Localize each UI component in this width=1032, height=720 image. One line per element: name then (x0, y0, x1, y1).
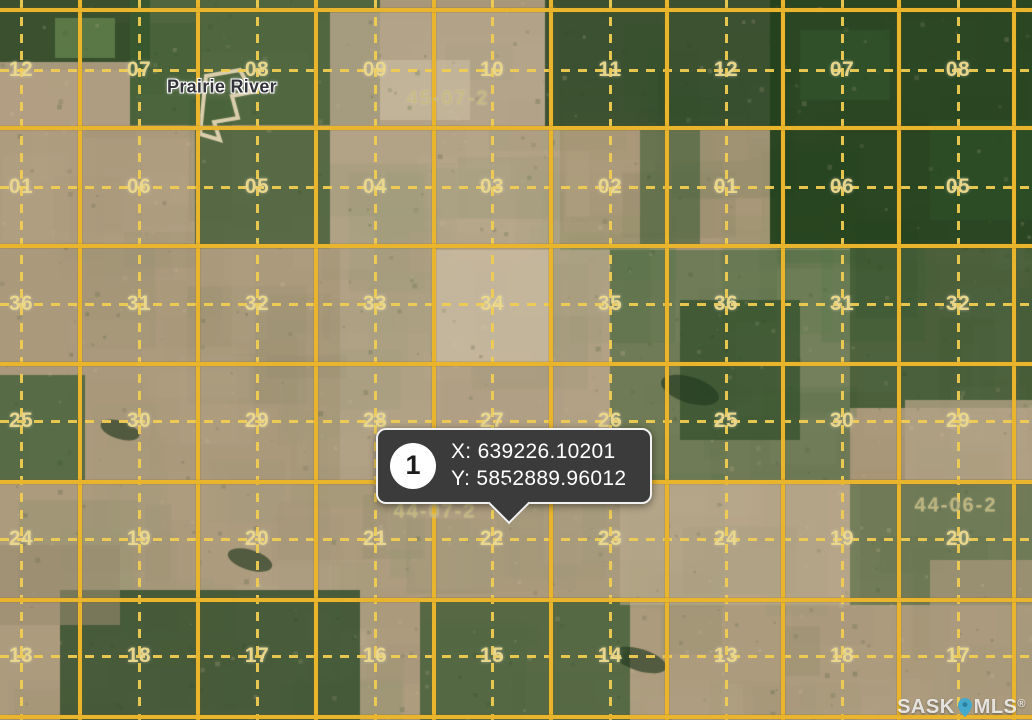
section-number-label: 20 (245, 527, 269, 551)
section-number-label: 14 (598, 644, 622, 668)
section-number-label: 09 (363, 58, 387, 82)
section-number-label: 25 (9, 409, 33, 433)
section-number-label: 08 (245, 58, 269, 82)
section-number-label: 25 (714, 409, 738, 433)
map-pin-icon (958, 698, 972, 717)
section-number-label: 10 (480, 58, 504, 82)
marker-y-coordinate: Y: 5852889.96012 (451, 466, 626, 493)
section-number-label: 05 (946, 175, 970, 199)
section-number-label: 24 (9, 527, 33, 551)
section-number-label: 01 (714, 175, 738, 199)
marker-tooltip[interactable]: 1 X: 639226.10201 Y: 5852889.96012 (376, 428, 652, 504)
section-number-label: 05 (245, 175, 269, 199)
sask-mls-watermark: SASK MLS ® (897, 696, 1026, 719)
section-number-label: 13 (714, 644, 738, 668)
section-number-label: 11 (598, 58, 621, 82)
section-number-label: 35 (598, 292, 622, 316)
section-number-label: 23 (598, 527, 622, 551)
township-range-label: 45-07-2 (407, 88, 490, 111)
section-number-label: 21 (363, 527, 387, 551)
watermark-prefix: SASK (897, 696, 955, 719)
map[interactable]: Prairie River 12070809101112070801060504… (0, 0, 1032, 720)
watermark-suffix: MLS (974, 696, 1018, 719)
section-number-label: 36 (714, 292, 738, 316)
section-number-label: 15 (480, 644, 504, 668)
section-number-label: 03 (480, 175, 504, 199)
section-number-label: 32 (245, 292, 269, 316)
section-number-label: 13 (9, 644, 33, 668)
section-number-label: 07 (830, 58, 854, 82)
grid-label-layer: Prairie River 12070809101112070801060504… (0, 0, 1032, 720)
section-number-label: 30 (830, 409, 854, 433)
section-number-label: 01 (9, 175, 33, 199)
marker-x-coordinate: X: 639226.10201 (451, 439, 626, 466)
section-number-label: 18 (830, 644, 854, 668)
section-number-label: 22 (480, 527, 504, 551)
township-range-label: 44-07-2 (394, 501, 477, 524)
section-number-label: 08 (946, 58, 970, 82)
section-number-label: 17 (946, 644, 970, 668)
section-number-label: 33 (363, 292, 387, 316)
section-number-label: 02 (598, 175, 622, 199)
section-number-label: 18 (127, 644, 151, 668)
section-number-label: 31 (127, 292, 151, 316)
section-number-label: 29 (245, 409, 269, 433)
section-number-label: 31 (830, 292, 854, 316)
section-number-label: 19 (127, 527, 151, 551)
marker-coordinates: X: 639226.10201 Y: 5852889.96012 (451, 439, 626, 493)
section-number-label: 17 (245, 644, 269, 668)
section-number-label: 12 (9, 58, 33, 82)
section-number-label: 29 (946, 409, 970, 433)
section-number-label: 24 (714, 527, 738, 551)
section-number-label: 34 (480, 292, 504, 316)
section-number-label: 36 (9, 292, 33, 316)
township-range-label: 44-06-2 (915, 495, 998, 518)
section-number-label: 12 (714, 58, 738, 82)
registered-symbol: ® (1017, 698, 1026, 710)
section-number-label: 07 (127, 58, 151, 82)
section-number-label: 06 (127, 175, 151, 199)
section-number-label: 16 (363, 644, 387, 668)
marker-number-badge: 1 (390, 443, 436, 489)
section-number-label: 19 (830, 527, 854, 551)
section-number-label: 20 (946, 527, 970, 551)
section-number-label: 32 (946, 292, 970, 316)
section-number-label: 04 (363, 175, 387, 199)
section-number-label: 06 (830, 175, 854, 199)
section-number-label: 30 (127, 409, 151, 433)
